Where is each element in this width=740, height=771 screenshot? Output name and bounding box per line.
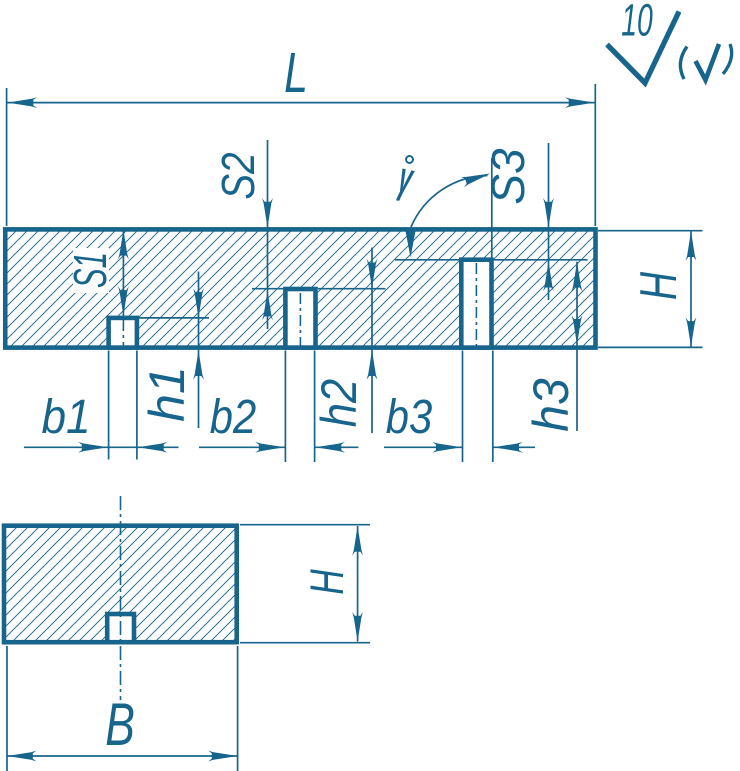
svg-text:H: H [628,271,687,300]
svg-text:S1: S1 [66,252,117,288]
svg-text:L: L [284,40,308,104]
svg-text:S3: S3 [482,148,534,205]
svg-text:b3: b3 [386,389,432,443]
svg-text:b1: b1 [41,389,90,443]
svg-text:h1: h1 [139,366,195,422]
svg-text:S2: S2 [213,152,264,199]
svg-text:H: H [300,568,353,594]
svg-text:B: B [105,692,135,759]
svg-text:10: 10 [621,0,653,45]
svg-text:h3: h3 [524,378,579,431]
svg-text:b2: b2 [210,389,256,443]
svg-text:h2: h2 [311,379,366,427]
